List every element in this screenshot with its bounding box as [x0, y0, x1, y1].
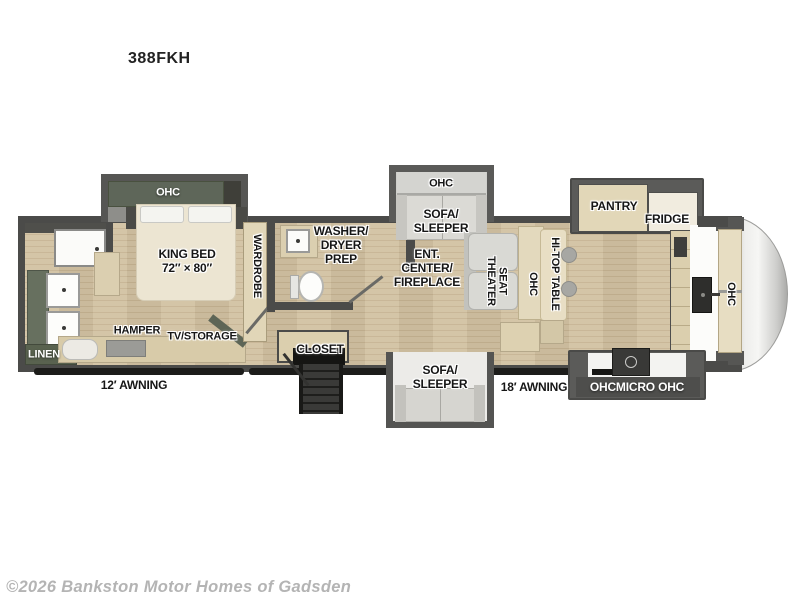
bedroom-wall [267, 216, 275, 312]
front-tv-arm [711, 293, 720, 296]
burner-icon [625, 356, 637, 368]
page-title: 388FKH [128, 50, 191, 68]
washer-line1: WASHER/ [314, 224, 369, 238]
counter-handle [592, 369, 614, 375]
living-cabinet [500, 322, 540, 352]
king-bed-line1: KING BED [158, 247, 215, 261]
ent-line1: ENT. [394, 247, 460, 261]
floorplan-canvas: 388FKH [0, 0, 800, 600]
hamper-label: HAMPER [114, 325, 160, 338]
pillow [188, 206, 232, 223]
sofa-top-line2: SLEEPER [414, 221, 469, 235]
theater-seat-label: THEATER SEAT [484, 256, 507, 306]
entry-steps [299, 364, 343, 414]
mid-bath-wall-bottom [267, 302, 353, 310]
sofa-bottom-line1: SOFA/ [413, 363, 468, 377]
shower-drain-icon [95, 247, 99, 251]
vanity-sink [46, 273, 80, 308]
hitop-stool [561, 247, 577, 263]
mid-ohc-label: OHC [526, 272, 538, 296]
cooktop [612, 348, 650, 376]
ohc-micro-label: OHCMICRO OHC [590, 380, 684, 394]
linen-label: LINEN [28, 349, 60, 362]
sofa-top-armrest [396, 195, 407, 240]
sofa-cushion-seam [440, 389, 441, 421]
sofa-top-label: SOFA/ SLEEPER [414, 207, 469, 235]
pillow [140, 206, 184, 223]
living-cabinet [540, 320, 564, 344]
faucet-icon [62, 326, 66, 330]
washer-line3: PREP [314, 252, 369, 266]
pantry-label: PANTRY [591, 199, 638, 213]
hamper-box [106, 340, 146, 357]
faucet-icon [62, 288, 66, 292]
faucet-icon [296, 239, 300, 243]
front-tv [692, 277, 712, 313]
mid-bath-sink [286, 229, 310, 253]
sofa-bottom-armrest [474, 385, 485, 422]
king-bed-label: KING BED 72″ × 80″ [158, 247, 215, 275]
theater-line2: SEAT [496, 256, 508, 306]
bedroom-ohc-label: OHC [156, 187, 180, 200]
watermark: ©2026 Bankston Motor Homes of Gadsden [6, 578, 351, 597]
sofa-bottom-line2: SLEEPER [413, 377, 468, 391]
tv-mount-icon [701, 293, 705, 297]
tv-storage-label: TV/STORAGE [167, 331, 236, 344]
awning-rail-left [34, 368, 244, 375]
washer-line2: DRYER [314, 238, 369, 252]
king-bed-line2: 72″ × 80″ [158, 261, 215, 275]
awning-left-label: 12′ AWNING [101, 378, 167, 392]
ent-center-label: ENT. CENTER/ FIREPLACE [394, 247, 460, 289]
fridge-label: FRIDGE [645, 212, 689, 226]
kitchen-sink [674, 237, 687, 257]
closet-label: CLOSET [296, 342, 343, 356]
toilet-bowl [298, 271, 324, 302]
sofa-bottom [395, 388, 485, 422]
bedroom-chest [94, 252, 120, 296]
front-wall-connector [698, 216, 728, 227]
sofa-bottom-armrest [395, 385, 406, 422]
washer-dryer-label: WASHER/ DRYER PREP [314, 224, 369, 266]
awning-right-label: 18′ AWNING [501, 380, 567, 394]
ent-line2: CENTER/ [394, 261, 460, 275]
hitop-stool [561, 281, 577, 297]
ent-line3: FIREPLACE [394, 275, 460, 289]
sofa-top-line1: SOFA/ [414, 207, 469, 221]
laundry-basket [62, 339, 98, 360]
hitop-table-label: HI-TOP TABLE [548, 237, 560, 310]
front-ohc-label: OHC [724, 282, 736, 306]
theater-line1: THEATER [484, 256, 496, 306]
living-ohc-top-label: OHC [429, 178, 453, 191]
sofa-bottom-label: SOFA/ SLEEPER [413, 363, 468, 391]
wardrobe-label: WARDROBE [250, 234, 262, 298]
